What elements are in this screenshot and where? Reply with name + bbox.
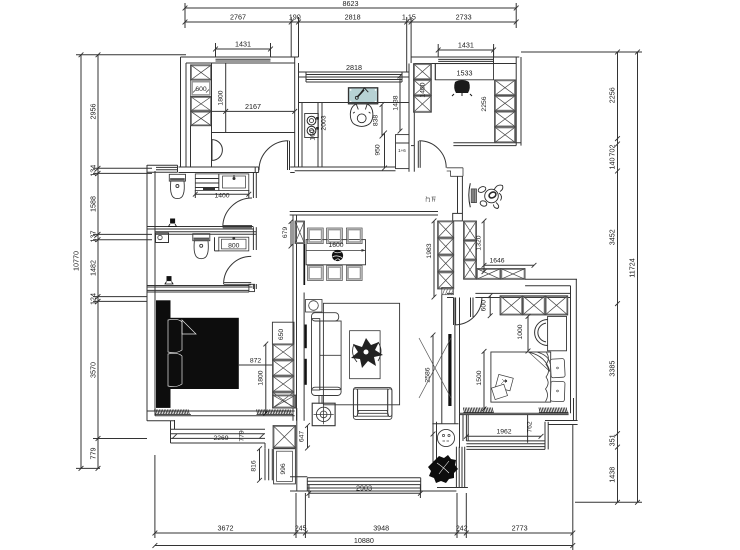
svg-text:2767: 2767 <box>230 13 246 22</box>
svg-text:702: 702 <box>608 145 617 157</box>
svg-text:1588: 1588 <box>89 196 98 212</box>
svg-text:679: 679 <box>282 227 289 239</box>
svg-text:1800: 1800 <box>218 90 225 105</box>
svg-text:996: 996 <box>280 463 287 475</box>
svg-text:137: 137 <box>89 231 98 243</box>
svg-text:779: 779 <box>89 448 98 460</box>
svg-text:1500: 1500 <box>476 370 483 385</box>
svg-text:11724: 11724 <box>628 258 637 277</box>
svg-text:3948: 3948 <box>373 523 389 532</box>
svg-text:647: 647 <box>299 431 306 443</box>
svg-text:1800: 1800 <box>258 370 265 385</box>
svg-text:3672: 3672 <box>218 523 234 532</box>
svg-text:3570: 3570 <box>89 362 98 378</box>
svg-text:1962: 1962 <box>496 429 511 436</box>
svg-text:1983: 1983 <box>426 243 433 258</box>
svg-text:3452: 3452 <box>608 229 617 245</box>
svg-text:2586: 2586 <box>425 367 432 382</box>
svg-text:140: 140 <box>608 158 617 170</box>
svg-text:1+6: 1+6 <box>398 148 406 153</box>
svg-text:816: 816 <box>251 460 258 472</box>
svg-text:1482: 1482 <box>89 260 98 276</box>
svg-text:1533: 1533 <box>457 69 473 78</box>
svg-text:10880: 10880 <box>354 536 374 545</box>
svg-text:1438: 1438 <box>608 467 617 483</box>
svg-text:2818: 2818 <box>345 13 361 22</box>
svg-text:762: 762 <box>527 421 534 433</box>
svg-text:1600: 1600 <box>328 242 343 249</box>
svg-text:2256: 2256 <box>481 96 488 111</box>
svg-text:2733: 2733 <box>456 13 472 22</box>
svg-text:600: 600 <box>195 86 207 93</box>
svg-text:1431: 1431 <box>235 40 251 49</box>
svg-text:800: 800 <box>228 243 240 250</box>
svg-text:1400: 1400 <box>214 193 229 200</box>
svg-text:1320: 1320 <box>476 235 483 250</box>
svg-text:1646: 1646 <box>489 258 504 265</box>
svg-text:124: 124 <box>89 293 98 305</box>
svg-text:2773: 2773 <box>512 523 528 532</box>
svg-text:1438: 1438 <box>393 95 400 110</box>
svg-text:3385: 3385 <box>608 361 617 377</box>
svg-text:134: 134 <box>89 165 98 177</box>
svg-text:779: 779 <box>239 430 246 442</box>
svg-text:600: 600 <box>481 300 488 312</box>
svg-text:1000: 1000 <box>517 324 524 339</box>
svg-text:2167: 2167 <box>245 102 261 111</box>
svg-text:8623: 8623 <box>343 0 359 8</box>
svg-text:1431: 1431 <box>458 41 474 50</box>
svg-text:872: 872 <box>250 358 262 365</box>
svg-text:1,15: 1,15 <box>402 13 416 22</box>
svg-text:2256: 2256 <box>608 87 617 103</box>
svg-text:950: 950 <box>375 144 382 156</box>
svg-text:351: 351 <box>608 434 617 446</box>
svg-text:650: 650 <box>278 329 285 341</box>
svg-text:160: 160 <box>310 129 317 141</box>
svg-text:838: 838 <box>373 115 380 127</box>
svg-text:2818: 2818 <box>346 63 362 72</box>
svg-text:2956: 2956 <box>89 104 98 120</box>
svg-text:10770: 10770 <box>72 251 81 271</box>
svg-text:2269: 2269 <box>213 435 228 442</box>
svg-text:1400: 1400 <box>420 82 427 97</box>
